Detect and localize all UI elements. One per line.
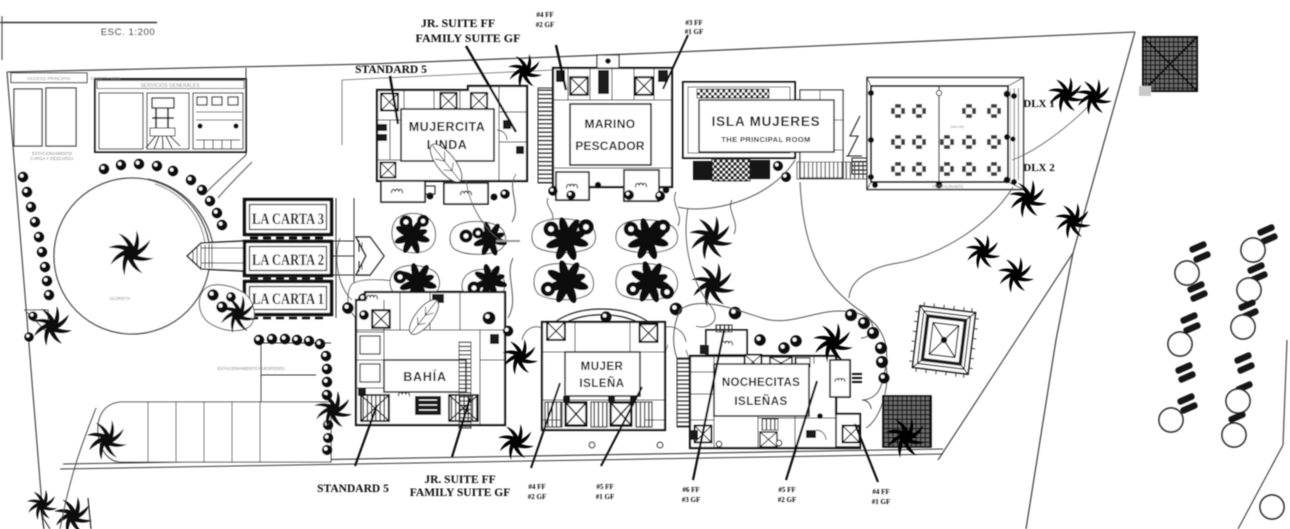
- svg-text:LA CARTA 2: LA CARTA 2: [252, 252, 324, 269]
- svg-text:#1 GF: #1 GF: [872, 498, 890, 506]
- svg-text:STANDARD 5: STANDARD 5: [355, 64, 427, 76]
- svg-text:LA CARTA 1: LA CARTA 1: [252, 291, 324, 308]
- svg-text:#5 FF: #5 FF: [778, 486, 795, 494]
- svg-text:#2 GF: #2 GF: [536, 21, 554, 29]
- svg-text:#3 GF: #3 GF: [682, 496, 700, 504]
- svg-text:ESTACIONAMIENTO HUESPEDES: ESTACIONAMIENTO HUESPEDES: [217, 366, 284, 371]
- svg-text:ISLEÑA: ISLEÑA: [579, 377, 624, 390]
- svg-text:#4 FF: #4 FF: [872, 488, 889, 496]
- svg-text:#6 FF: #6 FF: [682, 486, 699, 494]
- svg-text:PESCADOR: PESCADOR: [575, 139, 645, 153]
- svg-text:#4 FF: #4 FF: [528, 483, 545, 491]
- svg-text:ISLEÑAS: ISLEÑAS: [734, 395, 787, 408]
- svg-text:FAMILY SUITE GF: FAMILY SUITE GF: [410, 487, 511, 499]
- svg-text:FAMILY SUITE GF: FAMILY SUITE GF: [416, 31, 521, 45]
- svg-text:#1 GF: #1 GF: [596, 493, 614, 501]
- svg-text:#5 FF: #5 FF: [596, 483, 613, 491]
- svg-text:JR. SUITE FF: JR. SUITE FF: [421, 16, 495, 30]
- svg-text:ISLA MUJERES: ISLA MUJERES: [712, 114, 821, 129]
- svg-text:JR. SUITE FF: JR. SUITE FF: [424, 474, 495, 486]
- svg-text:CARGA Y DESCARGA: CARGA Y DESCARGA: [30, 156, 73, 161]
- svg-text:GLORIETA: GLORIETA: [110, 296, 131, 301]
- svg-text:CASETA VIGIL: CASETA VIGIL: [91, 76, 122, 81]
- svg-text:DLX 2: DLX 2: [1023, 162, 1055, 174]
- svg-text:#2 GF: #2 GF: [778, 496, 796, 504]
- svg-text:#2 GF: #2 GF: [528, 493, 546, 501]
- svg-text:NOCHECITAS: NOCHECITAS: [722, 377, 800, 389]
- svg-text:SALON: SALON: [950, 124, 964, 129]
- svg-text:SERVICIOS GENERALES: SERVICIOS GENERALES: [140, 83, 200, 89]
- svg-text:RESTAURANTE: RESTAURANTE: [933, 184, 964, 189]
- svg-text:MUJERCITA: MUJERCITA: [409, 120, 486, 134]
- svg-text:ACCESO PRINCIPAL: ACCESO PRINCIPAL: [27, 76, 71, 81]
- svg-text:LA CARTA 3: LA CARTA 3: [252, 211, 324, 228]
- svg-text:ESC. 1:200: ESC. 1:200: [101, 27, 156, 38]
- svg-text:THE PRINCIPAL ROOM: THE PRINCIPAL ROOM: [721, 135, 810, 144]
- svg-text:BAHÍA: BAHÍA: [403, 369, 447, 384]
- svg-text:MUJER: MUJER: [581, 361, 624, 373]
- svg-text:STANDARD 5: STANDARD 5: [317, 483, 389, 495]
- svg-text:#4 FF: #4 FF: [536, 11, 553, 19]
- svg-text:#3 FF: #3 FF: [685, 19, 702, 27]
- svg-text:MARINO: MARINO: [584, 117, 635, 131]
